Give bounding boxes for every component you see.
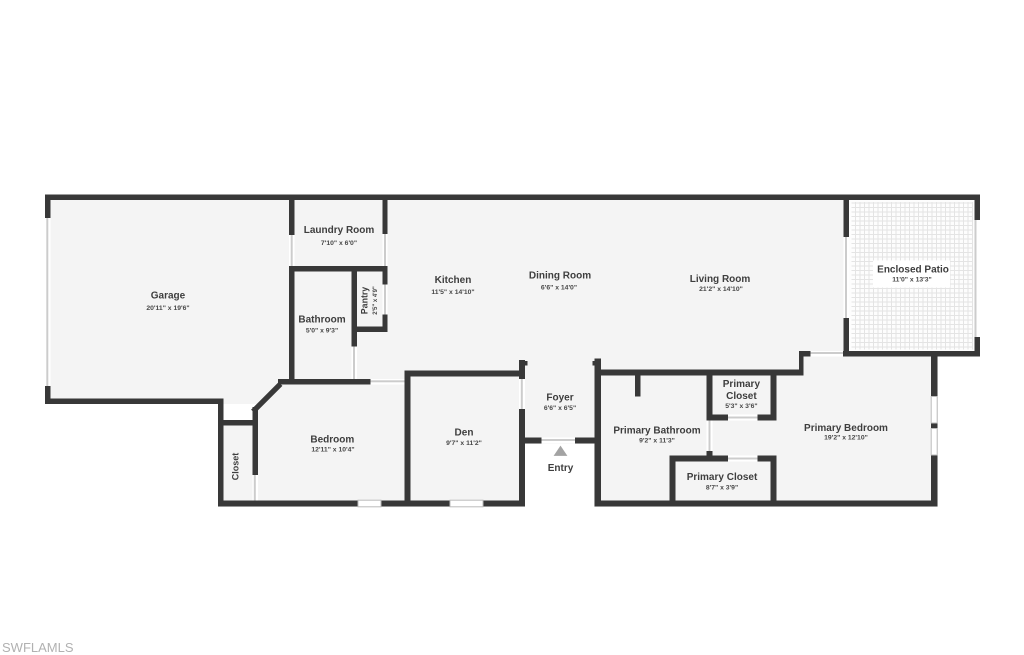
svg-text:19'2" x 12'10": 19'2" x 12'10": [824, 435, 868, 442]
svg-text:21'2" x 14'10": 21'2" x 14'10": [699, 286, 743, 293]
svg-text:7'10" x 6'0": 7'10" x 6'0": [321, 240, 357, 247]
svg-text:Primary Bathroom: Primary Bathroom: [613, 425, 700, 436]
svg-text:Pantry: Pantry: [360, 287, 370, 314]
svg-text:12'11" x 10'4": 12'11" x 10'4": [311, 447, 354, 454]
svg-text:5'3" x 3'6": 5'3" x 3'6": [725, 403, 757, 410]
svg-text:SWFLAMLS: SWFLAMLS: [2, 640, 74, 655]
svg-text:Foyer: Foyer: [546, 392, 573, 403]
svg-text:Dining Room: Dining Room: [529, 271, 591, 282]
svg-text:Primary: Primary: [723, 379, 761, 390]
svg-text:Kitchen: Kitchen: [435, 275, 472, 286]
svg-text:6'6" x 14'0": 6'6" x 14'0": [541, 284, 577, 291]
svg-text:Enclosed Patio: Enclosed Patio: [877, 265, 949, 276]
svg-text:6'6" x 6'5": 6'6" x 6'5": [544, 405, 576, 412]
svg-text:8'7" x 3'9": 8'7" x 3'9": [706, 484, 738, 491]
svg-text:9'7" x 11'2": 9'7" x 11'2": [446, 440, 482, 447]
svg-text:Closet: Closet: [726, 391, 757, 402]
svg-text:Garage: Garage: [151, 290, 186, 301]
svg-text:Living Room: Living Room: [690, 274, 751, 285]
svg-text:Den: Den: [455, 427, 474, 438]
svg-text:Closet: Closet: [231, 453, 241, 481]
svg-text:20'11" x 19'6": 20'11" x 19'6": [146, 305, 189, 312]
svg-text:11'0" x 13'3": 11'0" x 13'3": [892, 277, 932, 284]
svg-text:11'5" x 14'10": 11'5" x 14'10": [431, 289, 474, 296]
svg-text:2'5" x 4'9": 2'5" x 4'9": [373, 286, 379, 315]
svg-text:Entry: Entry: [548, 463, 574, 474]
svg-text:Primary Bedroom: Primary Bedroom: [804, 423, 888, 434]
svg-text:Bedroom: Bedroom: [310, 434, 354, 445]
svg-text:5'0" x 9'3": 5'0" x 9'3": [306, 327, 338, 334]
svg-text:Primary Closet: Primary Closet: [687, 472, 758, 483]
svg-text:Bathroom: Bathroom: [298, 314, 345, 325]
svg-text:Laundry Room: Laundry Room: [304, 225, 375, 236]
svg-text:9'2" x 11'3": 9'2" x 11'3": [639, 437, 675, 444]
